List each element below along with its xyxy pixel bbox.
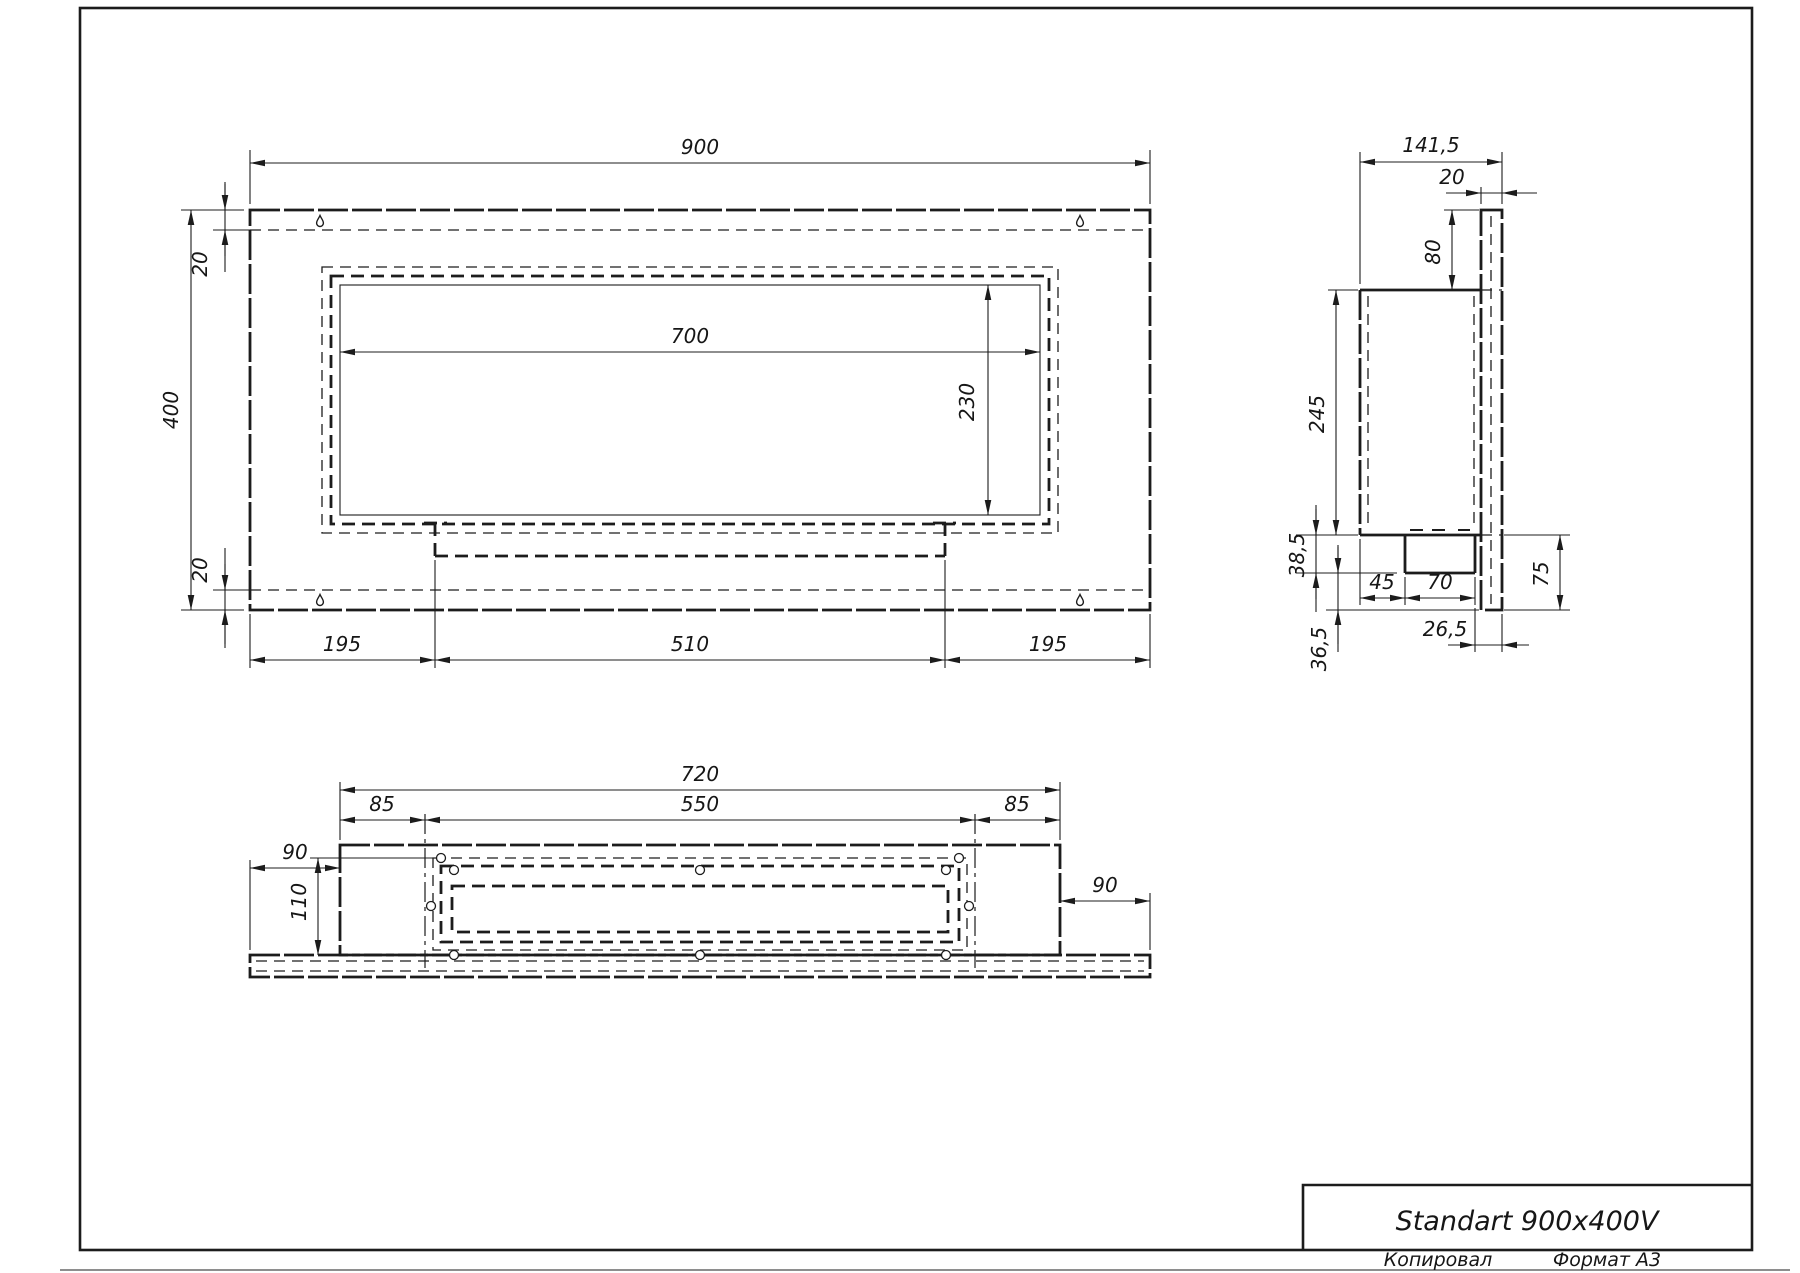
dim-text: 20: [188, 557, 212, 582]
dim-text: 45: [1369, 570, 1394, 594]
dim-side-top-offset: 80: [1421, 210, 1479, 290]
sheet-frame: [60, 8, 1790, 1270]
dim-text: 38,5: [1285, 533, 1309, 578]
title-block: Standart 900x400V Копировал Формат А3: [1303, 1185, 1752, 1271]
dim-front-opening-width: 700: [340, 324, 1040, 352]
dim-text: 195: [323, 632, 361, 656]
dim-side-tray-drop: 38,5: [1285, 505, 1397, 612]
dim-text: 70: [1427, 570, 1452, 594]
dim-text: 80: [1421, 239, 1445, 264]
burner-tray-hidden: [424, 523, 956, 556]
copied-label: Копировал: [1384, 1249, 1493, 1271]
dim-text: 900: [681, 135, 719, 159]
front-opening-hidden-frame: [331, 276, 1049, 524]
dim-text: 26,5: [1423, 617, 1468, 641]
front-view: 900 400 20 20 700: [159, 135, 1150, 668]
side-view: 141,5 20 80 245 38,5: [1285, 133, 1570, 671]
sheet-border: [80, 8, 1752, 1250]
dim-text: 700: [671, 324, 709, 348]
dim-text: 110: [287, 883, 311, 921]
dim-front-top-flange: 20: [188, 182, 250, 277]
dim-text: 90: [282, 840, 307, 864]
dim-text: 245: [1305, 395, 1329, 433]
dim-side-lower-height: 75: [1504, 535, 1570, 610]
dim-text: 550: [681, 792, 719, 816]
dim-text: 400: [159, 391, 183, 429]
front-opening: [340, 285, 1040, 515]
dim-text: 85: [1004, 792, 1029, 816]
keyhole-icon: [317, 595, 324, 606]
dim-text: 195: [1029, 632, 1067, 656]
keyhole-icon: [1077, 216, 1084, 227]
dim-front-overall-width: 900: [250, 135, 1150, 204]
dim-bottom-right-overhang: 90: [1060, 873, 1150, 950]
dim-text: 20: [1439, 165, 1464, 189]
side-burner-tray: [1405, 535, 1475, 573]
bottom-box: [340, 845, 1060, 955]
dim-text: 141,5: [1402, 133, 1459, 157]
dim-text: 90: [1092, 873, 1117, 897]
dim-side-tray-back-gap: 26,5: [1423, 608, 1529, 652]
format-label: Формат А3: [1553, 1249, 1661, 1271]
keyhole-icon: [1077, 595, 1084, 606]
dim-text: 720: [681, 762, 719, 786]
drawing-sheet: 900 400 20 20 700: [0, 0, 1800, 1273]
dim-side-body-height: 245: [1296, 290, 1358, 535]
dim-front-bottom-row: 195 510 195: [250, 560, 1150, 668]
dim-front-bottom-flange: 20: [188, 548, 250, 648]
drawing-title: Standart 900x400V: [1396, 1206, 1661, 1237]
bottom-opening-inner: [452, 886, 948, 932]
dim-front-opening-height: 230: [955, 285, 988, 515]
dim-bottom-opening-row: 85 550 85: [340, 792, 1060, 820]
front-opening-outer-frame: [322, 267, 1058, 533]
dim-text: 230: [955, 383, 979, 421]
dim-text: 510: [671, 632, 709, 656]
dim-text: 75: [1529, 561, 1553, 586]
front-outer-panel: [250, 210, 1150, 610]
keyhole-icon: [317, 216, 324, 227]
dim-text: 20: [188, 251, 212, 276]
dim-text: 36,5: [1307, 627, 1331, 672]
bottom-view: 720 85 550 85 90 90 110: [250, 762, 1150, 977]
dim-text: 85: [369, 792, 394, 816]
dim-bottom-box-depth: 110: [287, 858, 318, 955]
drawing-canvas: 900 400 20 20 700: [0, 0, 1800, 1273]
dim-side-back-panel: 20: [1439, 165, 1537, 204]
screw-holes: [427, 854, 974, 960]
dim-side-bottom-gap: 36,5: [1307, 545, 1479, 671]
